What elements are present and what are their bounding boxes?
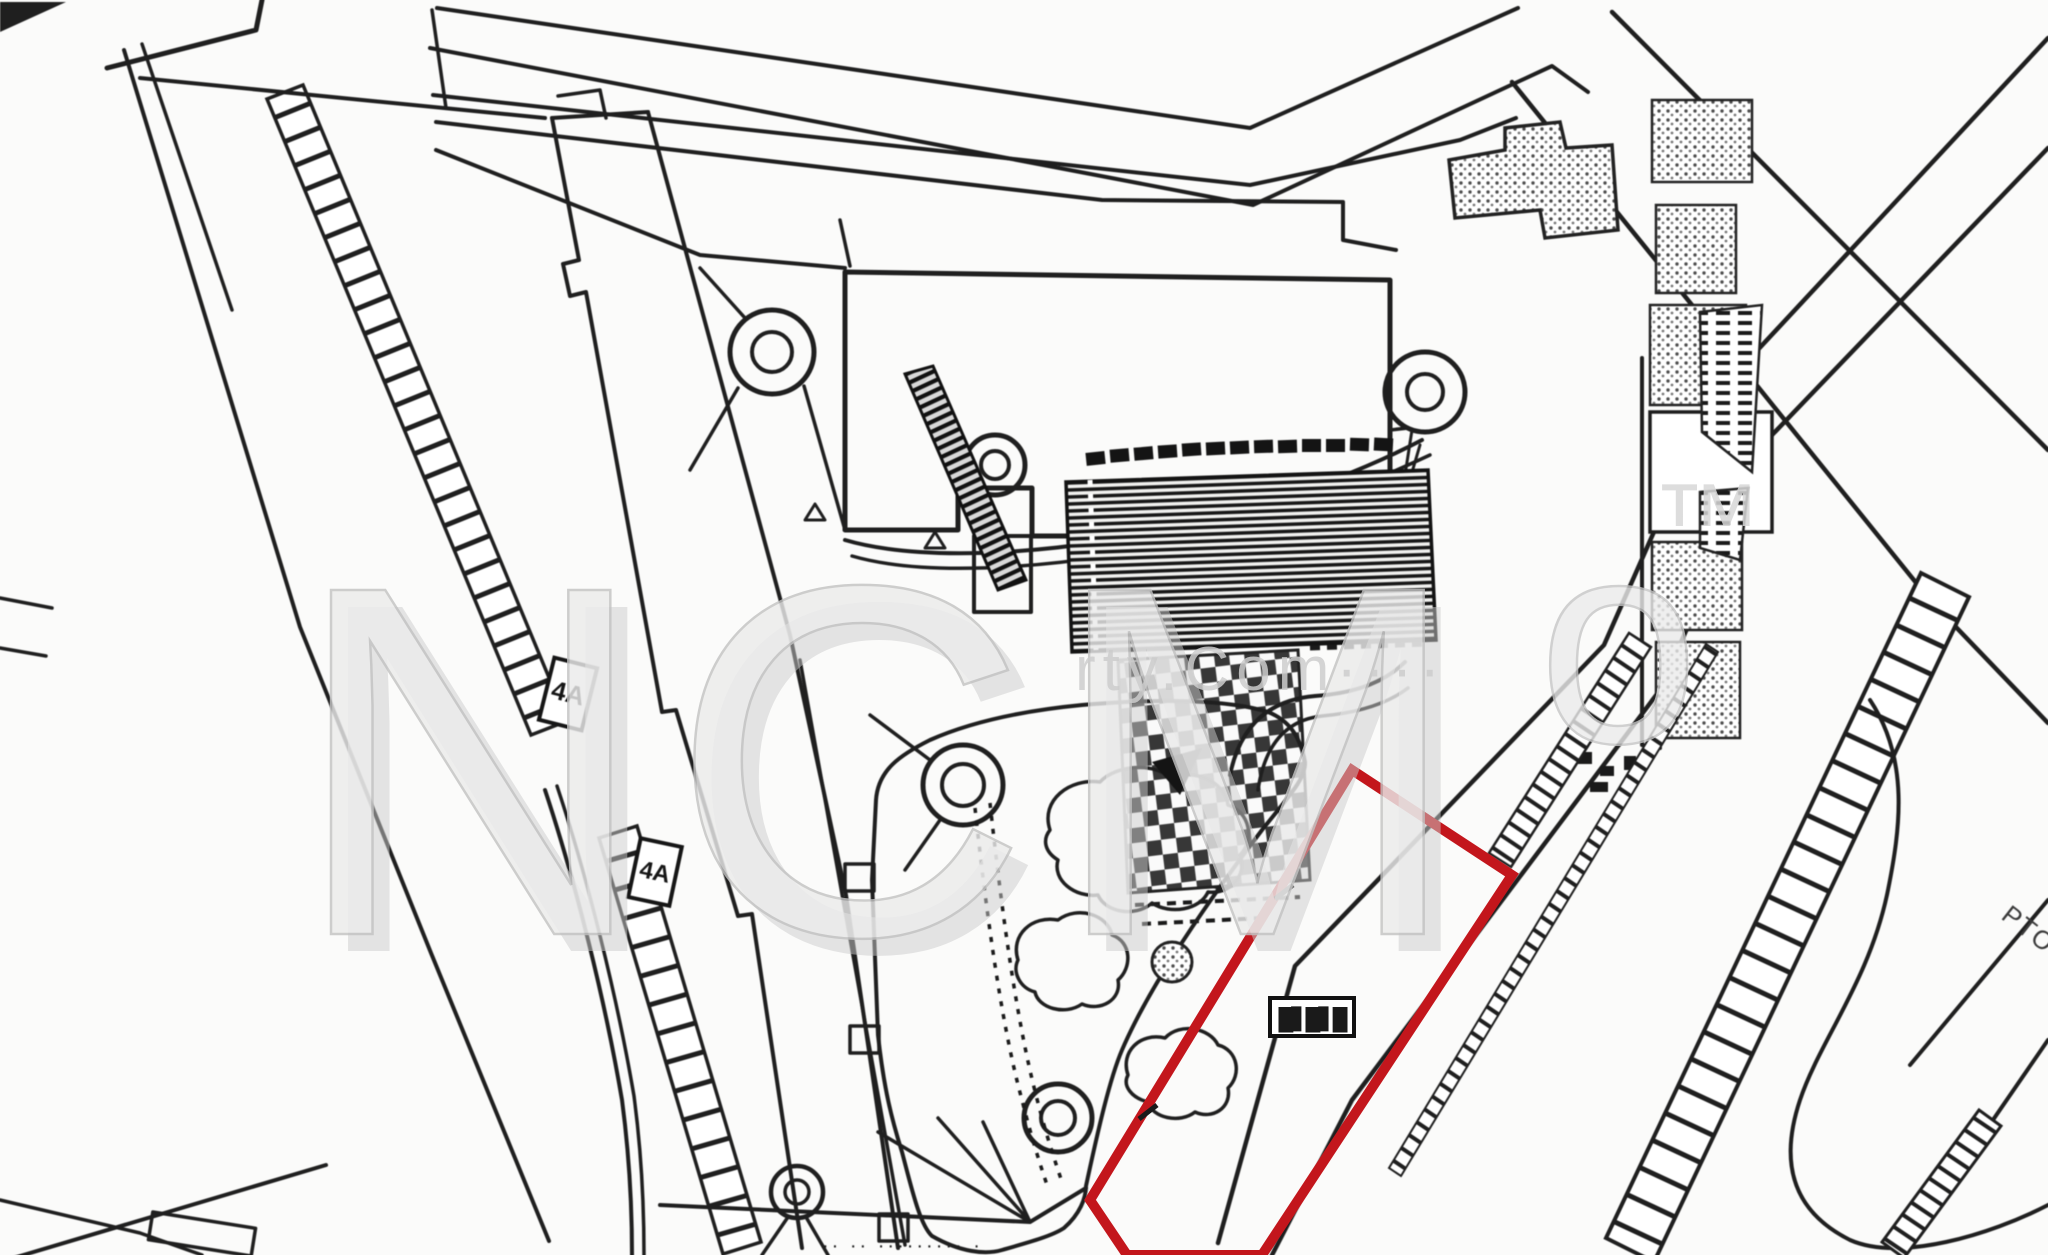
left-building — [552, 90, 898, 1248]
bottom-note-text: ·· ·· ········· · — [822, 1235, 983, 1255]
roadside-dash-strip — [1389, 644, 1718, 1176]
plot-label: █▋█▋█ — [1270, 998, 1354, 1036]
dark-hatch-strip — [905, 366, 1026, 590]
parking-strip-1-label: 4A — [539, 658, 597, 731]
parcel-line-left-of-garden — [800, 660, 905, 1245]
car-row — [1085, 438, 1393, 466]
roadside-hatch-band — [1489, 633, 1651, 867]
left-road — [0, 44, 549, 1241]
plot-label-text: █▋█▋█ — [1279, 1006, 1348, 1033]
bottom-left-parcels — [0, 786, 644, 1255]
top-left-corner-mark — [0, 0, 262, 68]
site-plan-drawing: 4A 4A — [0, 0, 2048, 1255]
hatched-canopy — [1066, 470, 1436, 652]
roundabout-top-left — [690, 268, 845, 530]
stippled-building-top — [1449, 122, 1618, 238]
site-plan-page: 4A 4A — [0, 0, 2048, 1255]
